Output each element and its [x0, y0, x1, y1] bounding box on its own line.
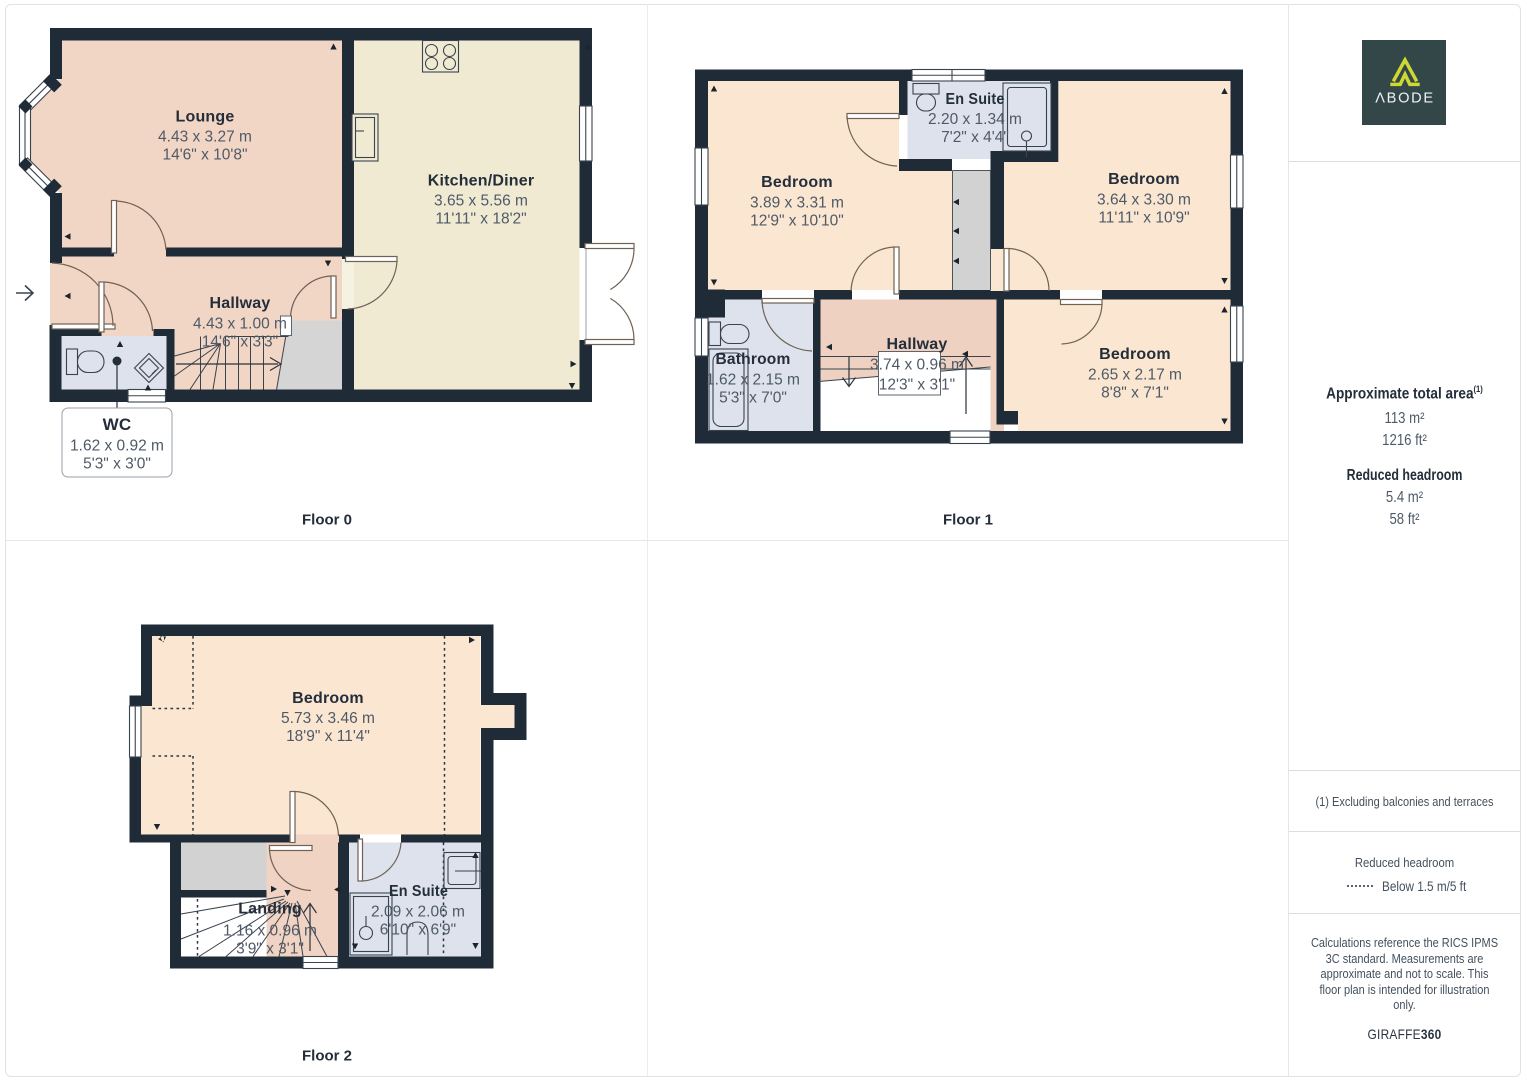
- svg-text:En Suite: En Suite: [389, 883, 448, 900]
- svg-text:8'8" x 7'1": 8'8" x 7'1": [1101, 385, 1169, 402]
- svg-text:14'6" x 3'3": 14'6" x 3'3": [202, 334, 278, 351]
- svg-text:Lounge: Lounge: [176, 109, 235, 126]
- svg-text:Bedroom: Bedroom: [1099, 346, 1171, 363]
- svg-text:11'11" x 10'9": 11'11" x 10'9": [1098, 210, 1189, 227]
- svg-text:12'3" x 3'1": 12'3" x 3'1": [879, 377, 955, 394]
- svg-text:2.09 x 2.06 m: 2.09 x 2.06 m: [371, 904, 465, 921]
- svg-text:3.89 x 3.31 m: 3.89 x 3.31 m: [750, 195, 844, 212]
- svg-text:ΛBODE: ΛBODE: [1375, 91, 1435, 107]
- svg-text:En Suite: En Suite: [946, 91, 1005, 108]
- svg-text:Bathroom: Bathroom: [716, 351, 791, 368]
- svg-text:3.74 x 0.96 m: 3.74 x 0.96 m: [870, 357, 964, 374]
- svg-text:4.43 x 1.00 m: 4.43 x 1.00 m: [193, 316, 287, 333]
- svg-text:5'3" x 7'0": 5'3" x 7'0": [719, 390, 787, 407]
- svg-text:Hallway: Hallway: [210, 295, 271, 312]
- svg-text:3.65 x 5.56 m: 3.65 x 5.56 m: [434, 193, 528, 210]
- svg-text:5'3" x 3'0": 5'3" x 3'0": [83, 456, 151, 473]
- svg-text:4.43 x 3.27 m: 4.43 x 3.27 m: [158, 129, 252, 146]
- svg-text:6'10" x 6'9": 6'10" x 6'9": [380, 922, 456, 939]
- svg-text:Landing: Landing: [238, 901, 302, 918]
- svg-text:1.16 x 0.96 m: 1.16 x 0.96 m: [223, 923, 317, 940]
- svg-text:18'9" x 11'4": 18'9" x 11'4": [286, 728, 370, 745]
- svg-text:3'9" x 3'1": 3'9" x 3'1": [236, 941, 304, 958]
- svg-text:Bedroom: Bedroom: [1108, 171, 1180, 188]
- svg-text:Floor 1: Floor 1: [943, 512, 993, 529]
- svg-text:Bedroom: Bedroom: [761, 174, 833, 191]
- svg-text:14'6" x 10'8": 14'6" x 10'8": [162, 147, 247, 164]
- svg-text:3.64 x 3.30 m: 3.64 x 3.30 m: [1097, 192, 1191, 209]
- svg-text:Bedroom: Bedroom: [292, 690, 364, 707]
- svg-text:7'2" x 4'4": 7'2" x 4'4": [941, 129, 1009, 146]
- svg-text:WC: WC: [103, 415, 132, 434]
- svg-text:1.62 x 0.92 m: 1.62 x 0.92 m: [70, 438, 164, 455]
- svg-text:1.62 x 2.15 m: 1.62 x 2.15 m: [706, 372, 800, 389]
- svg-text:5.73 x 3.46 m: 5.73 x 3.46 m: [281, 710, 375, 727]
- svg-text:Kitchen/Diner: Kitchen/Diner: [428, 173, 535, 190]
- svg-text:2.65 x 2.17 m: 2.65 x 2.17 m: [1088, 367, 1182, 384]
- svg-text:12'9" x 10'10": 12'9" x 10'10": [750, 213, 844, 230]
- svg-text:Floor 0: Floor 0: [302, 512, 352, 529]
- svg-text:Hallway: Hallway: [887, 336, 948, 353]
- svg-text:Floor 2: Floor 2: [302, 1048, 352, 1065]
- svg-text:11'11" x 18'2": 11'11" x 18'2": [435, 211, 526, 228]
- svg-text:2.20 x 1.34 m: 2.20 x 1.34 m: [928, 111, 1022, 128]
